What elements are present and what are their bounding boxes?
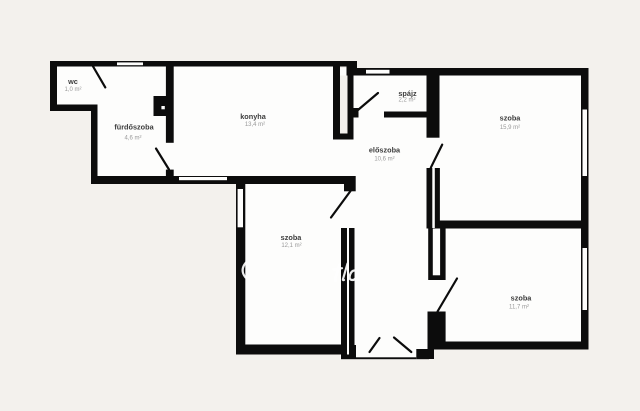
svg-text:szoba: szoba (500, 113, 522, 122)
svg-text:szoba: szoba (281, 233, 303, 242)
svg-text:2,2 m²: 2,2 m² (398, 98, 415, 104)
svg-text:12,1 m²: 12,1 m² (281, 243, 301, 249)
svg-text:10,6 m²: 10,6 m² (374, 157, 394, 163)
svg-text:előszoba: előszoba (369, 145, 401, 154)
svg-text:szoba: szoba (511, 293, 533, 302)
svg-text:spájz: spájz (398, 89, 417, 98)
svg-text:15,9 m²: 15,9 m² (500, 125, 520, 131)
svg-text:1,0 m²: 1,0 m² (64, 87, 81, 93)
svg-text:wc: wc (67, 77, 78, 86)
svg-text:fürdőszoba: fürdőszoba (114, 123, 154, 132)
svg-text:konyha: konyha (240, 112, 266, 121)
svg-text:11,7 m²: 11,7 m² (509, 304, 529, 310)
svg-text:4,6 m²: 4,6 m² (124, 135, 141, 141)
svg-text:13,4 m²: 13,4 m² (245, 122, 265, 128)
